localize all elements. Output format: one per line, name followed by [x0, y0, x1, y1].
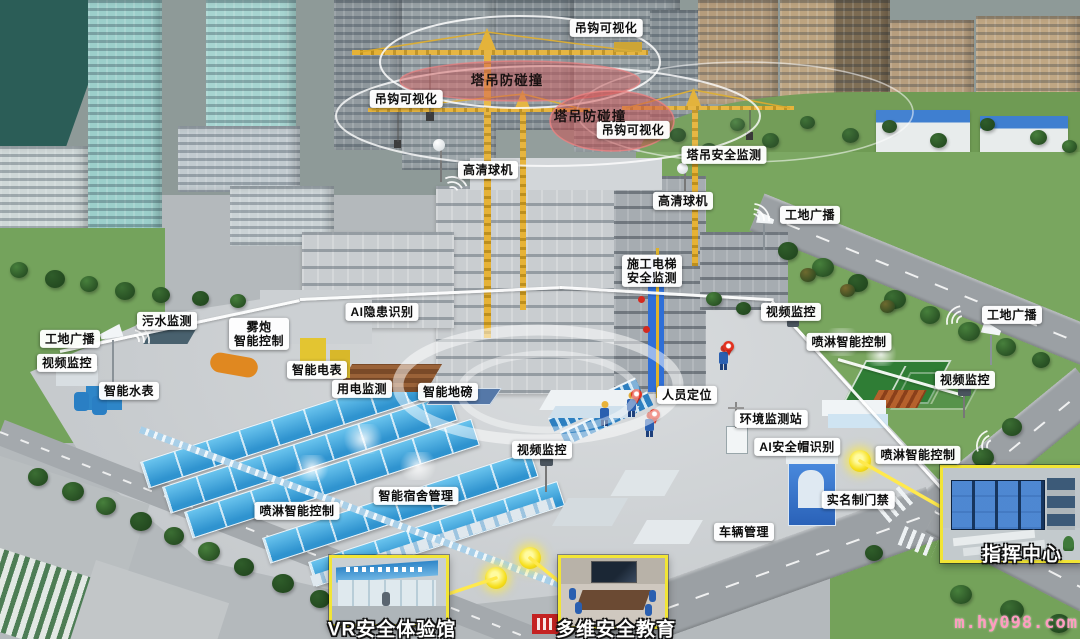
tw: [178, 126, 300, 192]
tw: [334, 0, 402, 150]
annotation-pill: 视频监控: [37, 354, 97, 372]
flat: [614, 42, 642, 52]
education-inset-label: 多维安全教育: [556, 615, 676, 639]
annotation-pill: 视频监控: [935, 371, 995, 389]
tree: [1032, 352, 1050, 368]
crane-zone-label: 塔吊防碰撞: [554, 105, 627, 125]
crane-zone-label: 塔吊防碰撞: [471, 69, 544, 89]
tree: [164, 527, 184, 545]
annotation-pill: 智能地磅: [418, 383, 478, 401]
annotation-pill: 视频监控: [512, 441, 572, 459]
annotation-pill: 雾炮智能控制: [229, 318, 289, 350]
flat: [728, 407, 744, 409]
flat: [440, 148, 442, 182]
smart-construction-site-diagram: 吊钩可视化吊钩可视化吊钩可视化塔吊安全监测高清球机高清球机工地广播施工电梯安全监…: [0, 0, 1080, 639]
person: [600, 408, 609, 420]
flat: [763, 224, 765, 250]
annotation-pill: 实名制门禁: [822, 491, 895, 509]
flat: [112, 340, 114, 382]
jibY: [622, 106, 794, 110]
tree: [96, 497, 116, 515]
tw: [698, 0, 778, 104]
jibY: [352, 50, 648, 55]
annotation-pill: 喷淋智能控制: [254, 502, 339, 520]
flat: [963, 396, 965, 418]
annotation-pill: 吊钩可视化: [370, 90, 443, 108]
ball: [433, 139, 445, 151]
annotation-pill: 工地广播: [982, 306, 1042, 324]
cam: [958, 388, 971, 396]
annotation-pill: 塔吊安全监测: [681, 146, 766, 164]
cam: [787, 320, 799, 327]
classroom-person: [649, 590, 656, 602]
mist: [396, 452, 440, 480]
tree: [10, 262, 28, 278]
pin: [631, 389, 643, 405]
tree: [45, 270, 65, 288]
tree: [706, 292, 722, 306]
flat: [638, 296, 645, 303]
annotation-pill: 吊钩可视化: [570, 19, 643, 37]
annotation-pill: 用电监测: [332, 380, 392, 398]
flat: [74, 392, 89, 411]
tree: [930, 133, 947, 148]
tree: [28, 468, 48, 486]
tree: [192, 291, 209, 306]
classroom-screen: [591, 561, 637, 583]
tree: [272, 574, 294, 593]
tree: [865, 545, 883, 561]
tree: [842, 128, 859, 143]
vr-inset-label: VR安全体验馆: [328, 615, 456, 639]
annotation-pill: 污水监测: [137, 312, 197, 330]
classroom-table: [575, 590, 650, 610]
annotation-pill: 喷淋智能控制: [806, 333, 891, 351]
flat: [394, 140, 401, 148]
watermark: m.hy098.com: [954, 613, 1078, 633]
tree: [800, 268, 816, 282]
tree: [230, 294, 246, 308]
tw: [206, 0, 296, 134]
tree: [1002, 418, 1022, 436]
ydot: [849, 450, 871, 472]
tree: [670, 128, 686, 142]
mastY: [520, 106, 526, 310]
command-inset-label: 指挥中心: [982, 540, 1062, 567]
tree: [996, 338, 1016, 356]
mastY: [692, 104, 698, 266]
annotation-pill: 高清球机: [458, 161, 518, 179]
classroom-person: [569, 588, 576, 600]
annotation-pill: 工地广播: [780, 206, 840, 224]
tree: [1030, 130, 1047, 145]
flat: [786, 456, 838, 464]
annotation-pill: 人员定位: [657, 386, 717, 404]
tree: [115, 282, 135, 300]
annotation-pill: 工地广播: [40, 330, 100, 348]
annotation-pill: 喷淋智能控制: [875, 446, 960, 464]
annotation-pill: 视频监控: [761, 303, 821, 321]
pin: [723, 341, 735, 357]
pin: [649, 409, 661, 425]
flat: [545, 466, 547, 492]
annotation-pill: 施工电梯安全监测: [622, 255, 682, 287]
annotation-pill: AI安全帽识别: [754, 438, 840, 456]
flat: [549, 406, 640, 418]
flat: [70, 560, 229, 639]
flat: [746, 132, 753, 140]
flat: [426, 112, 434, 121]
tree: [152, 287, 170, 303]
classroom-person: [575, 602, 582, 614]
tree: [80, 276, 98, 292]
cam: [540, 458, 553, 466]
ball: [677, 163, 688, 174]
annotation-pill: AI隐患识别: [345, 303, 418, 321]
annotation-pill: 车辆管理: [714, 523, 774, 541]
annotation-pill: 智能水表: [99, 382, 159, 400]
mist: [340, 424, 386, 454]
annotation-pill: 智能宿舍管理: [373, 487, 458, 505]
tree: [130, 512, 152, 531]
flat: [798, 470, 824, 508]
annotation-pill: 环境监测站: [735, 410, 808, 428]
command-screen-wall: [951, 480, 1045, 530]
ydot: [485, 567, 507, 589]
vr-booth-banner: [346, 567, 426, 572]
tree: [234, 558, 254, 576]
flat: [990, 335, 992, 365]
mist: [292, 455, 332, 481]
annotation-pill: 高清球机: [653, 192, 713, 210]
mastY: [484, 46, 491, 338]
command-plant: [1063, 536, 1074, 551]
vr-visitor: [382, 592, 390, 606]
tree: [778, 242, 798, 260]
flat: [726, 426, 748, 454]
tree: [920, 306, 940, 324]
annotation-pill: 智能电表: [287, 361, 347, 379]
flat: [643, 326, 650, 333]
tw: [88, 0, 162, 230]
tree: [310, 590, 330, 608]
command-side-screens: [1047, 478, 1075, 530]
ydot: [519, 547, 541, 569]
